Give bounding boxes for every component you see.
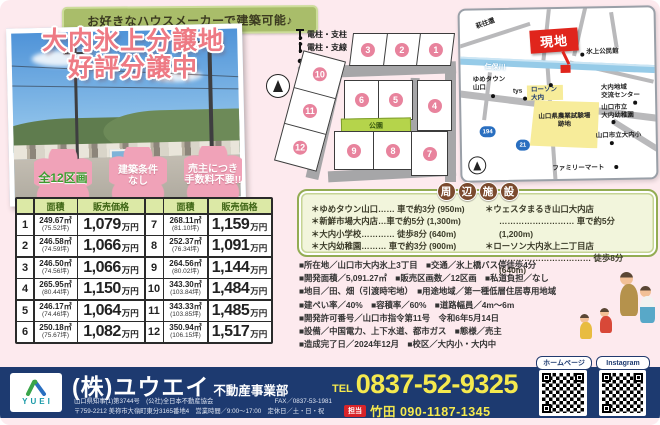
facility-item: ＊ウェスタまるき山口大内店 bbox=[485, 203, 651, 215]
lot-number: 7 bbox=[423, 147, 437, 161]
facility-item: ……………………… 車で約5分 (1,200m) bbox=[485, 215, 651, 240]
lot-no: 7 bbox=[146, 215, 163, 235]
lot-block-7: 7 bbox=[411, 131, 448, 176]
instagram-qr-label: Instagram bbox=[596, 356, 650, 370]
person-boy bbox=[580, 314, 592, 339]
lot-price: 1,066万円 bbox=[78, 258, 144, 278]
lot-block-low: 9 8 bbox=[334, 131, 413, 170]
lot-no: 11 bbox=[146, 301, 163, 321]
table-header-price: 販売価格 bbox=[209, 199, 271, 213]
lot-block-4: 4 bbox=[417, 80, 452, 131]
lot-no: 6 bbox=[17, 322, 33, 342]
lot-price: 1,485万円 bbox=[209, 301, 271, 321]
lot-area: 246.50㎡(74.56坪) bbox=[35, 258, 77, 278]
lot-number: 1 bbox=[429, 43, 443, 57]
lot-no: 1 bbox=[17, 215, 33, 235]
lot-layout-map: 電柱・支柱 電柱・支線 電柱 3 2 1 6 5 公園 9 8 4 7 bbox=[212, 28, 456, 184]
price-table: 面積 販売価格 面積 販売価格 1 249.67㎡(75.52坪) 1,079万… bbox=[15, 197, 273, 344]
facilities-title: 周 辺 施 設 bbox=[437, 182, 519, 201]
lot-price: 1,144万円 bbox=[209, 258, 271, 278]
flyer: お好きなハウスメーカーで建築可能♪ 大内氷上分譲地 好評分譲中 全12区画 建築… bbox=[0, 0, 660, 425]
river-label: 仁保川 bbox=[484, 62, 505, 73]
lot-number: 6 bbox=[355, 93, 369, 107]
detail-line: ■開発許可番号／山口市指令第11号 令和6年5月14日 bbox=[299, 312, 599, 325]
pole-support-icon bbox=[296, 29, 304, 40]
facility-item: ＊ゆめタウン山口…… 車で約3分 (950m) bbox=[311, 203, 483, 215]
lot-area: 246.17㎡(74.46坪) bbox=[35, 301, 77, 321]
lot-no: 12 bbox=[146, 322, 163, 342]
lot-no: 8 bbox=[146, 236, 163, 256]
facility-item: ＊ローソン大内氷上二丁目店 bbox=[485, 240, 651, 252]
yumetown-label prel: ゆめタウン 山口 bbox=[473, 76, 506, 92]
site-square bbox=[560, 65, 570, 73]
lot-number: 9 bbox=[347, 144, 361, 158]
lot-number: 12 bbox=[293, 140, 307, 154]
fax-number: FAX／0837-53-1981 bbox=[275, 396, 332, 405]
lot-number: 11 bbox=[303, 104, 317, 118]
lot-area: 264.56㎡(80.02坪) bbox=[164, 258, 207, 278]
company-logo: YUEI bbox=[10, 373, 62, 412]
compass-icon bbox=[468, 156, 486, 174]
lot-area: 252.37㎡(76.34坪) bbox=[164, 236, 207, 256]
license-line: 山口県知事(1)第3744号 (公社)全日本不動産協会 FAX／0837-53-… bbox=[74, 396, 332, 405]
detail-line: ■造成完了日／2024年12月 ■校区／大内小・大内中 bbox=[299, 338, 599, 351]
detail-line: ■開発面積／5,091.27㎡ ■販売区画数／12区画 ■私道負担／なし bbox=[299, 272, 599, 285]
lot-price: 1,082万円 bbox=[78, 322, 144, 342]
compass-icon bbox=[266, 74, 290, 98]
lot-area: 343.33㎡(103.85坪) bbox=[164, 301, 207, 321]
person-mother bbox=[640, 286, 655, 323]
tys-label: tys bbox=[513, 88, 523, 96]
lot-number: 2 bbox=[395, 43, 409, 57]
lot-area: 343.30㎡(103.84坪) bbox=[164, 279, 207, 299]
lot-price: 1,159万円 bbox=[209, 215, 271, 235]
legend-row: 電柱・支柱 bbox=[296, 28, 347, 41]
familymart-label: ファミリーマート bbox=[552, 164, 604, 172]
lot-no: 5 bbox=[17, 301, 33, 321]
access-map: 仁保川 現地 萩往還 氷上公民館 ゆめタウン 山口 tys ローソン 大内 大内… bbox=[457, 5, 658, 182]
detail-line: ■建ぺい率／40% ■容積率／60% ■道路幅員／4m～6m bbox=[299, 299, 599, 312]
logo-text: YUEI bbox=[19, 397, 53, 406]
lot-price: 1,064万円 bbox=[78, 301, 144, 321]
phone-block: TEL 0837-52-9325 bbox=[332, 369, 518, 400]
lot-no: 9 bbox=[146, 258, 163, 278]
route-21-badge: 21 bbox=[516, 139, 530, 150]
lot-price: 1,091万円 bbox=[209, 236, 271, 256]
lot-area: 265.95㎡(80.44坪) bbox=[35, 279, 77, 299]
badge-text: 全12区画 bbox=[38, 173, 87, 184]
person-girl bbox=[600, 308, 612, 333]
yuei-logo-mark bbox=[23, 379, 49, 396]
instagram-qr-code bbox=[599, 370, 646, 416]
lot-area: 350.94㎡(106.15坪) bbox=[164, 322, 207, 342]
lot-price: 1,150万円 bbox=[78, 279, 144, 299]
lot-number: 5 bbox=[389, 93, 403, 107]
contact-label: 担当 bbox=[344, 405, 366, 417]
lot-number: 8 bbox=[386, 144, 400, 158]
lot-no: 3 bbox=[17, 258, 33, 278]
license-text: 山口県知事(1)第3744号 (公社)全日本不動産協会 bbox=[74, 396, 213, 405]
lot-number: 4 bbox=[428, 99, 442, 113]
facility-item: ＊大内幼稚園……… 車で約3分 (900m) bbox=[311, 240, 483, 252]
farm-site-label: 山口県農業試験場 跡地 bbox=[531, 112, 597, 128]
lot-no: 2 bbox=[17, 236, 33, 256]
hikami-hall-label: 氷上公民館 bbox=[586, 48, 619, 56]
site-flag: 現地 bbox=[529, 27, 578, 53]
person-father bbox=[620, 272, 638, 316]
detail-line: ■設備／中国電力、上下水道、都市ガス ■態様／売主 bbox=[299, 325, 599, 338]
table-header-blank bbox=[146, 199, 163, 213]
facility-item: ＊大内小学校………… 徒歩8分 (640m) bbox=[311, 228, 483, 240]
contact-line: 担当 竹田 090-1187-1345 bbox=[344, 401, 491, 420]
facility-item: ＊新鮮市場大内店…車で約5分 (1,300m) bbox=[311, 215, 483, 227]
facilities-left-column: ＊ゆめタウン山口…… 車で約3分 (950m) ＊新鮮市場大内店…車で約5分 (… bbox=[311, 203, 483, 252]
table-header-area: 面積 bbox=[164, 199, 207, 213]
lot-number: 3 bbox=[361, 43, 375, 57]
lot-area: 268.11㎡(81.10坪) bbox=[164, 215, 207, 235]
detail-line: ■所在地／山口市大内氷上3丁目 ■交通／氷上橋バス停徒歩4分 bbox=[299, 259, 599, 272]
lot-price: 1,066万円 bbox=[78, 236, 144, 256]
homepage-qr-label: ホームページ bbox=[536, 356, 592, 370]
sakura-decoration bbox=[1, 1, 31, 31]
lot-block-top: 3 2 1 bbox=[349, 33, 455, 66]
tel-label: TEL bbox=[332, 383, 353, 395]
lot-block-mid: 6 5 bbox=[344, 80, 413, 120]
family-illustration bbox=[578, 266, 658, 366]
lot-no: 4 bbox=[17, 279, 33, 299]
lot-price: 1,484万円 bbox=[209, 279, 271, 299]
lot-price: 1,079万円 bbox=[78, 215, 144, 235]
lot-no: 10 bbox=[146, 279, 163, 299]
tel-number: 0837-52-9325 bbox=[356, 369, 518, 400]
property-details: ■所在地／山口市大内氷上3丁目 ■交通／氷上橋バス停徒歩4分 ■開発面積／5,0… bbox=[299, 259, 599, 351]
map-road bbox=[457, 22, 530, 51]
homepage-qr-code bbox=[539, 370, 587, 416]
lot-number: 10 bbox=[313, 68, 327, 82]
hagi-road-label: 萩往還 bbox=[475, 17, 496, 31]
lot-area: 249.67㎡(75.52坪) bbox=[35, 215, 77, 235]
exchange-center-label: 大内地域 交流センター bbox=[601, 84, 640, 100]
badge-text: 建築条件 なし bbox=[118, 165, 158, 187]
kindergarten-label: 山口市立 大内幼稚園 bbox=[601, 104, 634, 120]
lawson-label: ローソン 大内 bbox=[531, 86, 557, 101]
table-header-blank bbox=[17, 199, 33, 213]
address-line: 〒759-2212 美祢市大嶺町東分3165番地4 営業時間／9:00～17:0… bbox=[74, 406, 324, 415]
lot-area: 246.58㎡(74.59坪) bbox=[35, 236, 77, 256]
map-road bbox=[609, 12, 619, 48]
contact-phone: 竹田 090-1187-1345 bbox=[370, 401, 491, 420]
lot-area: 250.18㎡(75.67坪) bbox=[35, 322, 77, 342]
lot-price: 1,517万円 bbox=[209, 322, 271, 342]
elementary-label: 山口市立大内小 bbox=[596, 132, 642, 140]
facilities-box: 周 辺 施 設 ＊ゆめタウン山口…… 車で約3分 (950m) ＊新鮮市場大内店… bbox=[297, 189, 658, 257]
table-header-price: 販売価格 bbox=[78, 199, 144, 213]
route-194-badge: 194 bbox=[480, 126, 496, 137]
detail-line: ■地目／田、畑（引渡時宅地） ■用途地域／第一種低層住居専用地域 bbox=[299, 285, 599, 298]
table-header-area: 面積 bbox=[35, 199, 77, 213]
